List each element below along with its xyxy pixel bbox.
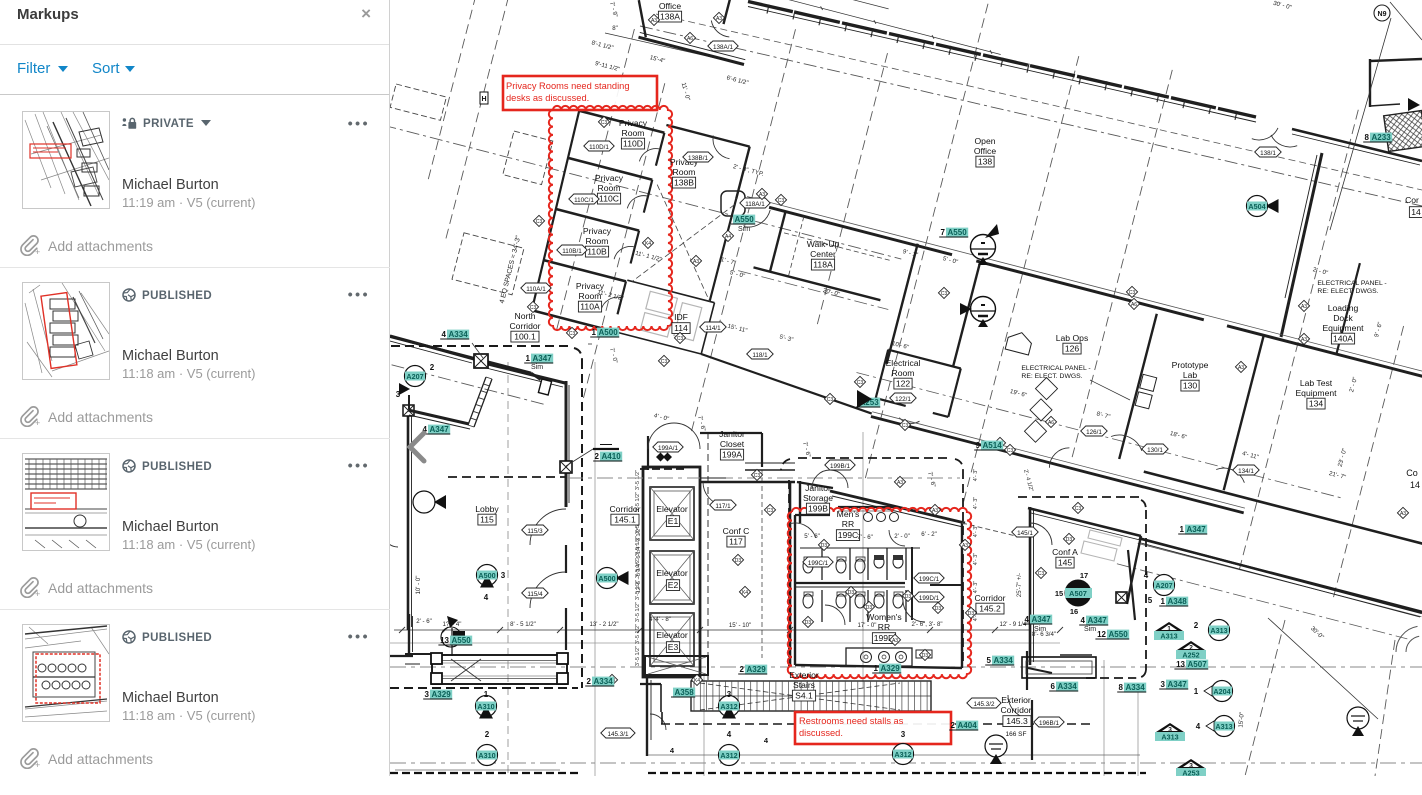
- svg-text:130: 130: [1183, 381, 1198, 391]
- svg-text:D3: D3: [866, 605, 873, 611]
- svg-text:Sim: Sim: [1034, 626, 1046, 633]
- svg-text:8' - 5 1/2": 8' - 5 1/2": [510, 621, 536, 628]
- svg-text:Corridor: Corridor: [974, 593, 1005, 603]
- svg-text:14: 14: [1411, 207, 1421, 217]
- svg-text:D3: D3: [935, 606, 942, 612]
- svg-text:C3: C3: [536, 219, 543, 225]
- svg-text:C3: C3: [1038, 571, 1045, 577]
- svg-text:4: 4: [1025, 615, 1030, 624]
- svg-text:138A: 138A: [660, 12, 680, 22]
- svg-text:A3: A3: [1238, 365, 1244, 371]
- svg-text:Lab: Lab: [1183, 370, 1198, 380]
- svg-text:6' - 2": 6' - 2": [921, 531, 937, 538]
- svg-text:14: 14: [1410, 480, 1420, 490]
- svg-text:199C/1: 199C/1: [808, 560, 829, 567]
- svg-text:IDF: IDF: [674, 312, 688, 322]
- svg-text:117: 117: [729, 537, 743, 547]
- svg-text:126: 126: [1065, 344, 1080, 354]
- svg-text:10' - 0": 10' - 0": [415, 576, 422, 595]
- svg-text:ELECTRICAL PANEL -: ELECTRICAL PANEL -: [1021, 365, 1090, 372]
- svg-text:115: 115: [480, 515, 494, 525]
- svg-text:RE: ELECT. DWGS.: RE: ELECT. DWGS.: [1021, 373, 1082, 380]
- svg-text:8": 8": [612, 25, 618, 32]
- svg-text:4'- 3": 4'- 3": [973, 581, 979, 594]
- svg-text:4: 4: [1196, 722, 1201, 731]
- svg-text:A6: A6: [1048, 420, 1054, 426]
- svg-text:145/1: 145/1: [1017, 530, 1033, 537]
- svg-text:196B/1: 196B/1: [1039, 720, 1059, 727]
- svg-text:114/1: 114/1: [705, 325, 721, 332]
- svg-text:3: 3: [727, 690, 732, 699]
- svg-text:13: 13: [1176, 660, 1185, 669]
- svg-text:Corridor: Corridor: [509, 321, 540, 331]
- svg-text:A313: A313: [1210, 626, 1227, 635]
- svg-text:Stairs: Stairs: [793, 680, 815, 690]
- svg-text:2'- 6", 3'- 8": 2'- 6", 3'- 8": [911, 621, 942, 628]
- svg-text:A347: A347: [1187, 525, 1207, 534]
- svg-text:5: 5: [1148, 596, 1153, 605]
- svg-text:1: 1: [874, 664, 879, 673]
- svg-text:K4: K4: [694, 678, 700, 684]
- svg-text:A252: A252: [1182, 651, 1199, 660]
- svg-text:3: 3: [501, 571, 506, 580]
- svg-text:145.3/2: 145.3/2: [973, 701, 995, 708]
- svg-text:A313: A313: [1161, 733, 1178, 742]
- svg-text:3'-5 1/2": 3'-5 1/2": [635, 624, 641, 644]
- svg-text:3'-5 1/2": 3'-5 1/2": [635, 470, 641, 490]
- svg-text:16: 16: [1070, 607, 1078, 616]
- svg-text:A334: A334: [994, 656, 1014, 665]
- svg-text:4'- 3": 4'- 3": [973, 497, 979, 510]
- svg-text:Corridor: Corridor: [1000, 705, 1031, 715]
- svg-text:A204: A204: [1213, 687, 1230, 696]
- svg-text:110B: 110B: [587, 247, 607, 257]
- svg-text:3'-5 1/2": 3'-5 1/2": [635, 602, 641, 622]
- svg-text:Sim: Sim: [1084, 626, 1096, 633]
- svg-text:4'- 3": 4'- 3": [973, 469, 979, 482]
- svg-text:A3: A3: [759, 192, 765, 198]
- svg-text:2: 2: [595, 452, 600, 461]
- svg-text:A507: A507: [1188, 660, 1208, 669]
- svg-text:Cor: Cor: [1405, 195, 1419, 205]
- svg-text:Restrooms need stalls as: Restrooms need stalls as: [799, 716, 904, 726]
- svg-text:A3: A3: [651, 18, 657, 24]
- svg-text:+: +: [35, 589, 40, 598]
- svg-text:Equipment: Equipment: [1295, 388, 1337, 398]
- svg-text:9: 9: [976, 441, 981, 450]
- svg-text:A550: A550: [1109, 630, 1129, 639]
- svg-text:122: 122: [896, 379, 911, 389]
- svg-text:A3: A3: [716, 16, 722, 22]
- svg-text:C3: C3: [827, 397, 834, 403]
- svg-text:A312: A312: [720, 751, 737, 760]
- svg-text:1: 1: [592, 328, 597, 337]
- svg-text:Co: Co: [1406, 468, 1418, 478]
- svg-text:145.3/1: 145.3/1: [607, 731, 629, 738]
- svg-text:Sim: Sim: [531, 364, 543, 371]
- svg-text:A348: A348: [1168, 597, 1188, 606]
- svg-text:2: 2: [1194, 621, 1199, 630]
- svg-text:C3: C3: [767, 508, 774, 514]
- svg-text:A3: A3: [962, 543, 968, 549]
- svg-text:ELECTRICAL PANEL -: ELECTRICAL PANEL -: [1317, 280, 1386, 287]
- svg-text:A410: A410: [602, 452, 622, 461]
- svg-text:138A/1: 138A/1: [713, 44, 733, 51]
- svg-text:Elevator: Elevator: [656, 504, 688, 514]
- svg-text:Walk-Up: Walk-Up: [807, 239, 840, 249]
- svg-text:Room: Room: [586, 236, 609, 246]
- svg-text:8: 8: [1365, 133, 1370, 142]
- svg-text:2: 2: [587, 677, 592, 686]
- svg-text:145.1: 145.1: [614, 515, 636, 525]
- svg-text:25'-7" +/-: 25'-7" +/-: [1017, 573, 1023, 597]
- svg-text:Office: Office: [974, 146, 997, 156]
- svg-text:2' - 0": 2' - 0": [894, 533, 910, 540]
- svg-text:8: 8: [1119, 683, 1124, 692]
- svg-text:Prototype: Prototype: [1172, 360, 1209, 370]
- svg-text:1?' - 4": 1?' - 4": [443, 621, 462, 628]
- svg-text:A334: A334: [449, 330, 469, 339]
- svg-text:A334: A334: [1058, 682, 1078, 691]
- svg-text:A3: A3: [1400, 511, 1406, 517]
- svg-text:desks as discussed.: desks as discussed.: [506, 93, 589, 103]
- svg-text:D3: D3: [805, 620, 812, 626]
- svg-text:A329: A329: [747, 665, 767, 674]
- svg-text:C3: C3: [677, 336, 684, 342]
- svg-text:RR: RR: [842, 519, 854, 529]
- svg-text:2: 2: [740, 665, 745, 674]
- svg-text:145: 145: [1058, 558, 1073, 568]
- svg-text:+: +: [35, 247, 40, 256]
- svg-text:A310: A310: [477, 702, 494, 711]
- svg-text:C3: C3: [530, 305, 537, 311]
- svg-text:C3: C3: [569, 331, 576, 337]
- svg-text:134: 134: [1309, 399, 1324, 409]
- svg-text:199A/1: 199A/1: [658, 445, 678, 452]
- svg-text:Sim: Sim: [738, 226, 750, 233]
- svg-text:6: 6: [1051, 682, 1056, 691]
- svg-text:17: 17: [1080, 571, 1088, 580]
- svg-text:A207: A207: [1155, 581, 1172, 590]
- svg-text:Men's: Men's: [837, 509, 860, 519]
- svg-text:A507: A507: [1069, 589, 1087, 598]
- svg-text:117/1: 117/1: [715, 503, 731, 510]
- svg-text:Privacy Rooms need standing: Privacy Rooms need standing: [506, 81, 630, 91]
- svg-text:2: 2: [1273, 203, 1278, 212]
- svg-text:A3: A3: [693, 259, 699, 265]
- svg-text:Center: Center: [810, 249, 836, 259]
- svg-text:3'-5 1/2": 3'-5 1/2": [635, 646, 641, 666]
- svg-text:K4: K4: [645, 241, 651, 247]
- svg-text:Equipment: Equipment: [1322, 323, 1364, 333]
- svg-text:D3: D3: [905, 594, 912, 600]
- svg-text:2' - 6": 2' - 6": [416, 618, 432, 625]
- svg-text:D3: D3: [1066, 537, 1073, 543]
- svg-text:199C: 199C: [838, 530, 859, 540]
- svg-text:1: 1: [484, 690, 489, 699]
- svg-text:2: 2: [485, 730, 490, 739]
- svg-text:145.3: 145.3: [1006, 716, 1028, 726]
- svg-text:Lobby: Lobby: [475, 504, 499, 514]
- svg-text:D3: D3: [922, 653, 929, 659]
- svg-text:Room: Room: [892, 368, 915, 378]
- svg-text:A313: A313: [1215, 722, 1232, 731]
- svg-text:Corridor: Corridor: [609, 504, 640, 514]
- svg-text:1: 1: [1161, 597, 1166, 606]
- svg-text:Janitor: Janitor: [805, 483, 831, 493]
- svg-text:A310: A310: [478, 751, 495, 760]
- svg-text:Elevator: Elevator: [656, 630, 688, 640]
- svg-text:110B/1: 110B/1: [562, 248, 582, 255]
- svg-text:Elevator: Elevator: [656, 568, 688, 578]
- svg-text:A313: A313: [1160, 632, 1177, 641]
- svg-text:110A/1: 110A/1: [526, 286, 546, 293]
- svg-text:D3: D3: [848, 590, 855, 596]
- svg-text:A514: A514: [983, 441, 1003, 450]
- svg-text:A312: A312: [720, 702, 737, 711]
- svg-text:115/3: 115/3: [527, 528, 543, 535]
- svg-text:Exterior: Exterior: [1001, 695, 1031, 705]
- svg-text:A404: A404: [958, 721, 978, 730]
- svg-text:17' - 0": 17' - 0": [858, 622, 877, 629]
- svg-text:199B/1: 199B/1: [830, 463, 850, 470]
- svg-text:1: 1: [1194, 687, 1199, 696]
- svg-text:A347: A347: [430, 425, 450, 434]
- svg-text:D3: D3: [735, 558, 742, 564]
- svg-text:199C/1: 199C/1: [919, 576, 940, 583]
- svg-text:4'- 3": 4'- 3": [973, 553, 979, 566]
- svg-text:Storage: Storage: [803, 493, 833, 503]
- svg-text:130/1: 130/1: [1147, 447, 1163, 454]
- svg-text:A500: A500: [478, 571, 495, 580]
- svg-text:Conf A: Conf A: [1052, 547, 1078, 557]
- svg-text:A550: A550: [948, 228, 968, 237]
- svg-text:199D/1: 199D/1: [919, 595, 940, 602]
- svg-text:A334: A334: [594, 677, 614, 686]
- svg-text:Closet: Closet: [720, 439, 745, 449]
- svg-text:115/4: 115/4: [527, 591, 543, 598]
- svg-text:15: 15: [1055, 589, 1063, 598]
- svg-text:Open: Open: [974, 136, 995, 146]
- svg-text:110D/1: 110D/1: [589, 144, 609, 151]
- svg-text:110A: 110A: [580, 302, 600, 312]
- svg-text:A358: A358: [675, 688, 695, 697]
- svg-text:199A: 199A: [722, 450, 742, 460]
- svg-text:A329: A329: [432, 690, 452, 699]
- svg-text:4: 4: [484, 593, 489, 602]
- svg-text:A207: A207: [406, 372, 423, 381]
- svg-text:Privacy: Privacy: [595, 173, 624, 183]
- svg-text:7' - 6": 7' - 6": [857, 534, 873, 541]
- svg-text:Room: Room: [598, 183, 621, 193]
- svg-text:Room: Room: [673, 167, 696, 177]
- svg-text:126/1: 126/1: [1086, 429, 1102, 436]
- svg-text:A347: A347: [533, 354, 553, 363]
- svg-text:A253: A253: [1182, 769, 1199, 777]
- svg-text:C3: C3: [1129, 290, 1136, 296]
- svg-text:A233: A233: [1372, 133, 1392, 142]
- svg-text:145.2: 145.2: [979, 604, 1001, 614]
- svg-text:1: 1: [1180, 525, 1185, 534]
- svg-text:Exterior: Exterior: [789, 670, 819, 680]
- svg-text:15'-0": 15'-0": [1237, 712, 1245, 728]
- svg-text:C3: C3: [941, 291, 948, 297]
- svg-text:138B: 138B: [674, 178, 694, 188]
- svg-text:D3: D3: [821, 543, 828, 549]
- svg-text:RE: ELECT. DWGS.: RE: ELECT. DWGS.: [1317, 288, 1378, 295]
- svg-text:A6: A6: [687, 36, 693, 42]
- svg-text:5: 5: [623, 574, 628, 583]
- svg-text:13: 13: [440, 636, 449, 645]
- svg-text:A334: A334: [1126, 683, 1146, 692]
- svg-text:A3: A3: [932, 508, 938, 514]
- svg-text:118/1: 118/1: [752, 352, 768, 359]
- svg-text:N9: N9: [1378, 11, 1387, 18]
- svg-text:4: 4: [1144, 571, 1149, 580]
- svg-text:E3: E3: [668, 642, 679, 652]
- svg-text:Conf C: Conf C: [723, 526, 750, 536]
- svg-text:Privacy: Privacy: [583, 226, 612, 236]
- svg-text:2: 2: [430, 363, 435, 372]
- svg-text:C3: C3: [661, 359, 668, 365]
- svg-text:D3: D3: [968, 611, 975, 617]
- svg-text:Loading: Loading: [1328, 303, 1359, 313]
- svg-text:1: 1: [526, 354, 531, 363]
- svg-text:A500: A500: [599, 328, 619, 337]
- svg-text:5' - 6": 5' - 6": [804, 533, 820, 540]
- svg-text:E1: E1: [668, 516, 679, 526]
- svg-text:Lab Test: Lab Test: [1300, 378, 1333, 388]
- svg-text:A6: A6: [1131, 302, 1137, 308]
- svg-text:138: 138: [978, 157, 993, 167]
- svg-text:A550: A550: [452, 636, 472, 645]
- svg-text:4: 4: [727, 730, 732, 739]
- svg-text:3: 3: [1161, 680, 1166, 689]
- svg-text:C3: C3: [857, 380, 864, 386]
- svg-text:166 SF: 166 SF: [1006, 731, 1027, 738]
- svg-text:C3: C3: [1075, 506, 1082, 512]
- svg-text:C3: C3: [1007, 448, 1014, 454]
- svg-text:4' 4' - 8": 4' 4' - 8": [649, 616, 671, 623]
- svg-text:122/1: 122/1: [895, 396, 911, 403]
- svg-text:RR: RR: [878, 622, 890, 632]
- svg-text:A3: A3: [892, 638, 898, 644]
- svg-text:A329: A329: [881, 664, 901, 673]
- svg-text:Dock: Dock: [1333, 313, 1353, 323]
- svg-text:C3: C3: [601, 120, 608, 126]
- svg-text:100.1: 100.1: [514, 332, 536, 342]
- svg-text:A4: A4: [725, 234, 731, 240]
- svg-text:E2: E2: [668, 580, 679, 590]
- svg-text:110C/1: 110C/1: [574, 197, 594, 204]
- svg-text:3: 3: [425, 690, 430, 699]
- svg-text:134/1: 134/1: [1238, 468, 1254, 475]
- svg-text:discussed.: discussed.: [799, 728, 843, 738]
- svg-text:A500: A500: [598, 574, 615, 583]
- svg-text:C3: C3: [778, 198, 785, 204]
- svg-text:13' - 2 1/2": 13' - 2 1/2": [589, 621, 618, 628]
- svg-text:H: H: [481, 96, 486, 103]
- svg-text:+: +: [35, 418, 40, 427]
- svg-text:12: 12: [1097, 630, 1106, 639]
- svg-text:A3: A3: [1301, 337, 1307, 343]
- svg-text:110D: 110D: [623, 139, 643, 149]
- svg-text:A347: A347: [1168, 680, 1188, 689]
- svg-text:118A/1: 118A/1: [745, 201, 765, 208]
- svg-text:12'-5 - 5 3/4" -6 1/4" -3 1/: 12'-5 - 5 3/4" -6 1/4" -3 1/2": [636, 527, 642, 593]
- svg-text:4: 4: [442, 330, 447, 339]
- svg-text:110C: 110C: [599, 194, 619, 204]
- svg-text:C3: C3: [754, 473, 761, 479]
- svg-text:Privacy: Privacy: [619, 118, 648, 128]
- svg-text:138B/1: 138B/1: [688, 155, 708, 162]
- svg-text:118A: 118A: [813, 260, 833, 270]
- svg-text:Room: Room: [622, 128, 645, 138]
- svg-text:7: 7: [941, 228, 946, 237]
- svg-text:2: 2: [951, 721, 956, 730]
- svg-text:114: 114: [674, 323, 688, 333]
- svg-text:4'- 3": 4'- 3": [973, 525, 979, 538]
- svg-text:C3: C3: [902, 423, 909, 429]
- svg-text:A504: A504: [1248, 202, 1265, 211]
- svg-text:A347: A347: [1088, 616, 1108, 625]
- svg-text:140A: 140A: [1333, 334, 1353, 344]
- svg-text:A550: A550: [735, 215, 755, 224]
- svg-text:Office: Office: [659, 1, 682, 11]
- svg-text:Women's: Women's: [866, 612, 901, 622]
- svg-text:A347: A347: [1032, 615, 1052, 624]
- svg-text:S4.1: S4.1: [795, 691, 813, 701]
- svg-text:Electrical: Electrical: [886, 358, 921, 368]
- svg-text:199B: 199B: [808, 504, 828, 514]
- svg-text:3: 3: [901, 730, 906, 739]
- svg-text:K4: K4: [742, 590, 748, 596]
- svg-text:Lab Ops: Lab Ops: [1056, 333, 1089, 343]
- svg-text:138/1: 138/1: [1260, 150, 1276, 157]
- svg-text:4: 4: [1081, 616, 1086, 625]
- svg-text:5: 5: [987, 656, 992, 665]
- svg-text:15' - 10": 15' - 10": [729, 622, 751, 629]
- svg-text:+: +: [35, 760, 40, 769]
- svg-text:A3: A3: [897, 480, 903, 486]
- svg-text:A3: A3: [1301, 304, 1307, 310]
- svg-text:Janitor: Janitor: [719, 429, 745, 439]
- svg-text:A312: A312: [894, 750, 911, 759]
